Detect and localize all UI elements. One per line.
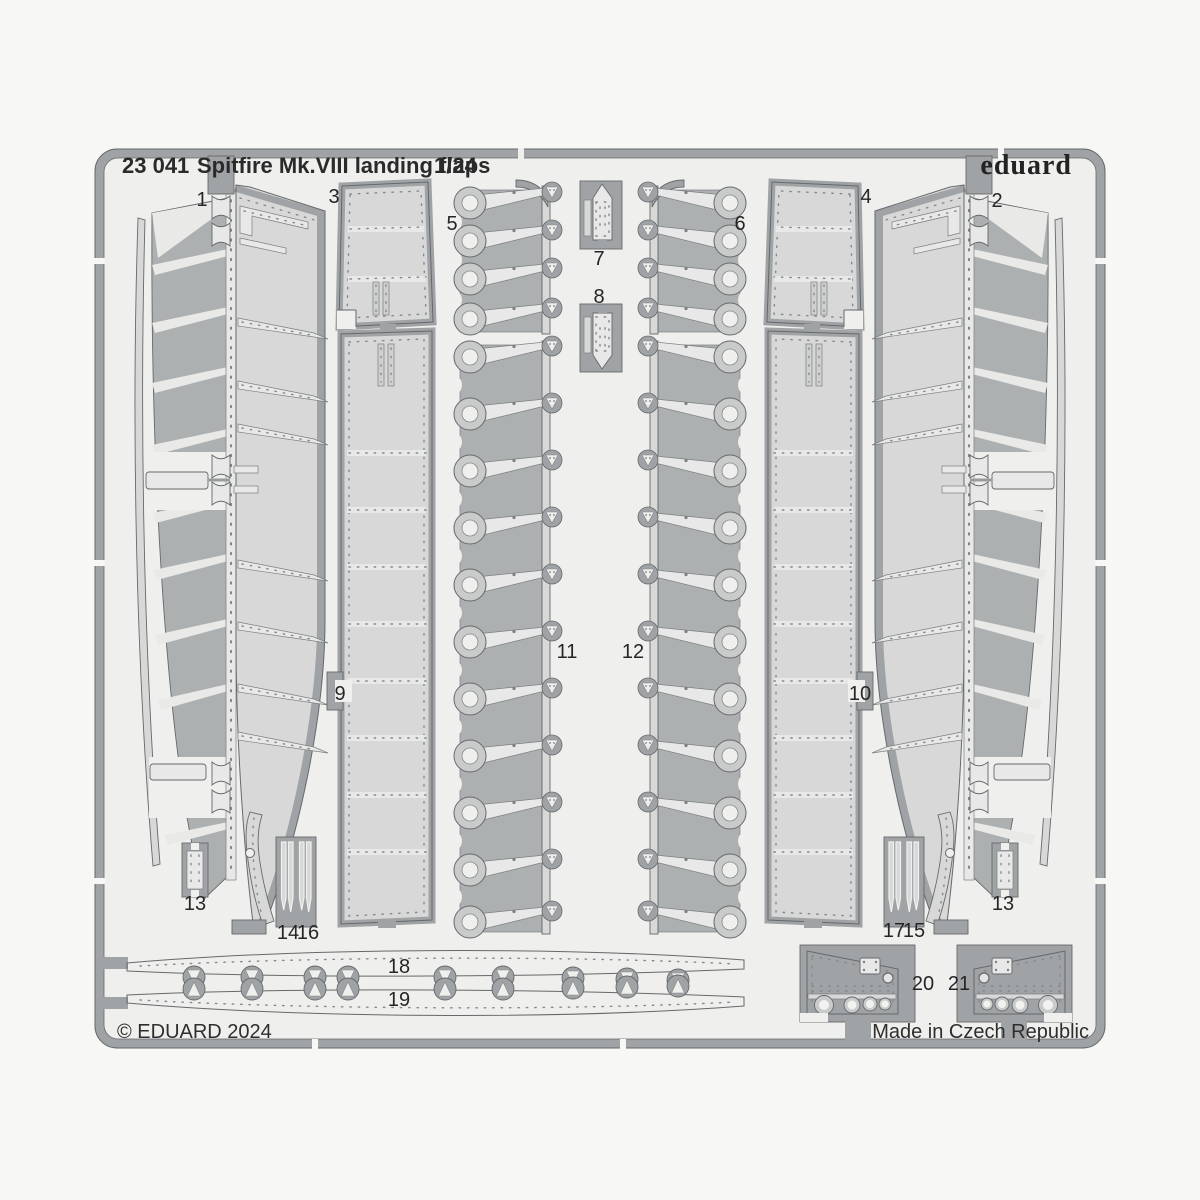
left-flap-parts-group [135,156,562,938]
part-label-16: 16 [297,922,319,944]
part-21-bracket [957,945,1072,1022]
sheet-scale: 1/24 [434,153,478,178]
part-label-17: 17 [883,920,905,942]
part-label-18: 18 [388,956,410,978]
part-label-6: 6 [734,213,745,235]
part-label-11: 11 [557,641,578,663]
right-flap-parts-group [638,156,1065,938]
part-label-2: 2 [991,190,1002,212]
part-label-12: 12 [622,641,644,663]
etched-fret-photo: 1 2 3 4 5 6 7 8 9 10 11 12 13 13 14 16 1… [0,0,1200,1200]
part-8-plate [580,304,622,372]
part-20-bracket [800,945,915,1022]
part-label-19: 19 [388,989,410,1011]
part-label-13-left: 13 [184,893,206,915]
part-label-20: 20 [912,973,934,995]
part-label-1: 1 [196,189,207,211]
part-label-10: 10 [849,683,871,705]
catalog-number: 23 041 [122,153,189,178]
part-label-5: 5 [446,213,457,235]
part-label-8: 8 [593,286,604,308]
part-label-13-right: 13 [992,893,1014,915]
part-label-15: 15 [903,920,925,942]
part-7-plate [580,181,622,249]
part-label-14: 14 [277,922,299,944]
part-label-4: 4 [860,186,871,208]
brand-logo: eduard [980,150,1072,181]
part-label-9: 9 [334,683,345,705]
fret-sheet: 1 2 3 4 5 6 7 8 9 10 11 12 13 13 14 16 1… [0,0,1200,1200]
part-label-3: 3 [328,186,339,208]
made-in-text: Made in Czech Republic [872,1021,1089,1043]
part-label-7: 7 [593,248,604,270]
part-label-21: 21 [948,973,970,995]
copyright-text: © EDUARD 2024 [117,1021,272,1043]
part-20-sprue-tab [845,1020,871,1041]
